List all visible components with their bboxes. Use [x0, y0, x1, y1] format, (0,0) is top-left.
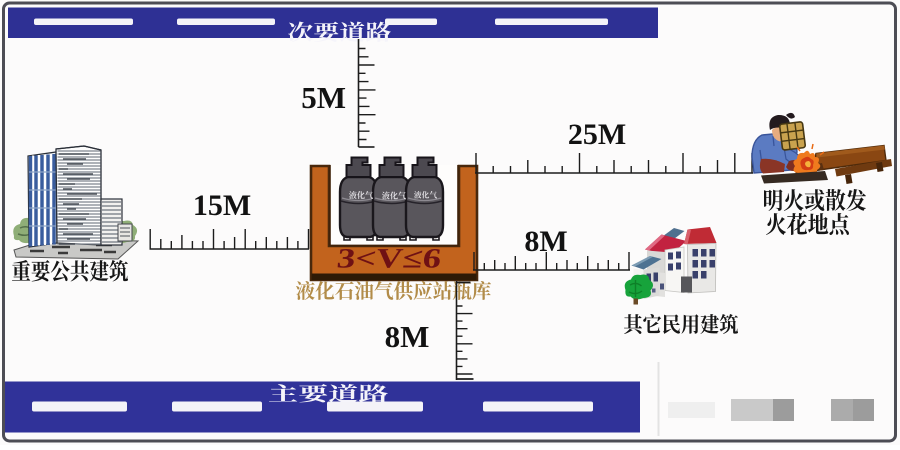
svg-text:25M: 25M [568, 118, 626, 151]
svg-text:8M: 8M [385, 319, 430, 354]
svg-text:15M: 15M [193, 189, 251, 222]
svg-text:8M: 8M [524, 225, 567, 258]
svg-text:3<V≤6: 3<V≤6 [335, 244, 443, 275]
svg-text:5M: 5M [301, 80, 346, 115]
